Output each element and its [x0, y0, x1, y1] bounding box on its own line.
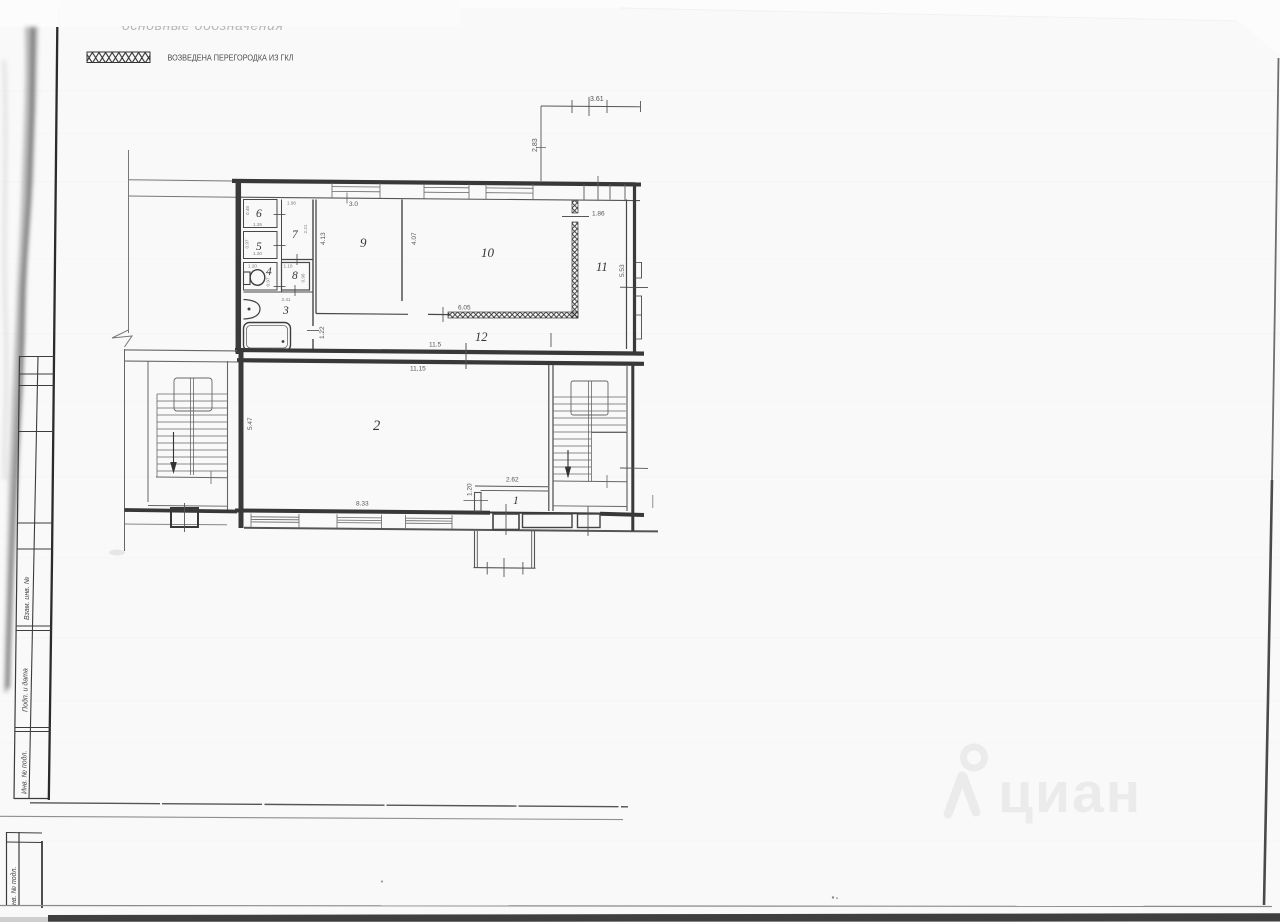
svg-text:1.96: 1.96 [287, 201, 296, 206]
svg-text:0.48: 0.48 [245, 206, 250, 215]
svg-text:5.47: 5.47 [247, 417, 254, 430]
svg-text:3.0: 3.0 [349, 201, 358, 208]
svg-text:2.41: 2.41 [282, 297, 291, 302]
svg-text:0.97: 0.97 [266, 277, 271, 286]
svg-text:11,15: 11,15 [410, 366, 426, 373]
svg-text:6: 6 [256, 208, 262, 220]
svg-text:циан: циан [998, 761, 1142, 825]
svg-text:3: 3 [282, 305, 289, 317]
svg-text:4.13: 4.13 [320, 232, 327, 245]
svg-text:12: 12 [475, 330, 488, 344]
svg-text:3.61: 3.61 [590, 96, 604, 103]
svg-text:Взам. инв. №: Взам. инв. № [24, 576, 31, 620]
svg-text:4.07: 4.07 [411, 232, 418, 245]
svg-text:2: 2 [373, 418, 380, 434]
svg-text:9: 9 [360, 235, 367, 250]
svg-text:4: 4 [266, 266, 272, 278]
svg-text:ВОЗВЕДЕНА ПЕРЕГОРОДКА ИЗ ГКЛ: ВОЗВЕДЕНА ПЕРЕГОРОДКА ИЗ ГКЛ [168, 54, 294, 63]
svg-text:1.86: 1.86 [592, 211, 605, 218]
svg-text:8.33: 8.33 [356, 501, 369, 508]
svg-text:0.90: 0.90 [301, 273, 306, 282]
svg-text:5.53: 5.53 [619, 264, 626, 277]
svg-text:11: 11 [596, 260, 608, 274]
svg-text:1: 1 [513, 495, 519, 507]
svg-text:1.26: 1.26 [253, 222, 262, 227]
svg-text:2.83: 2.83 [532, 138, 539, 152]
svg-text:1.22: 1.22 [319, 326, 326, 339]
svg-text:нв. № подл.: нв. № подл. [10, 867, 18, 905]
svg-text:Подп. и дата: Подп. и дата [22, 668, 30, 712]
svg-text:1.20: 1.20 [248, 264, 257, 269]
svg-text:1.10: 1.10 [284, 264, 293, 269]
svg-text:8: 8 [292, 270, 298, 282]
svg-text:10: 10 [481, 245, 495, 260]
svg-text:11.5: 11.5 [429, 342, 442, 349]
svg-text:0.97: 0.97 [245, 239, 250, 248]
svg-text:6.05: 6.05 [458, 305, 471, 312]
svg-text:2.21: 2.21 [303, 224, 308, 233]
svg-text:1.20: 1.20 [253, 251, 262, 256]
svg-text:1.20: 1.20 [467, 483, 474, 496]
svg-text:Инв. № подл.: Инв. № подл. [21, 751, 29, 794]
svg-text:2.62: 2.62 [506, 477, 519, 484]
